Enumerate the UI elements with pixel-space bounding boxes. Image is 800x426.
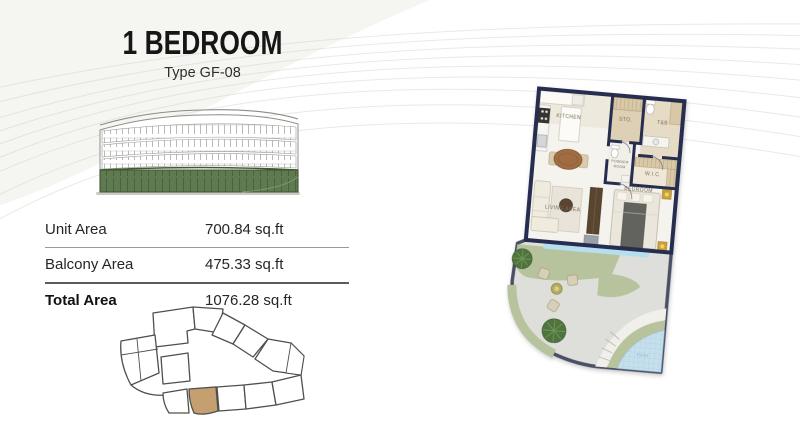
table-row: Unit Area 700.84 sq.ft: [45, 213, 349, 248]
unit-area-value: 700.84 sq.ft: [205, 221, 283, 238]
bed-runner: [621, 202, 647, 248]
building-upper-floors: [100, 115, 298, 170]
balcony-area-value: 475.33 sq.ft: [205, 256, 283, 273]
unit-interior: KITCHEN STO. T&B POWDER ROOM W.I.C. BEDR…: [526, 89, 685, 253]
nightstand-lamp: [662, 190, 672, 200]
terrace: POOL: [503, 239, 671, 372]
stove: [538, 108, 550, 124]
storage-shelf: [614, 97, 643, 111]
building-svg: [92, 97, 308, 203]
storage-label: STO.: [619, 117, 633, 124]
building-ground-floor-highlight: [100, 168, 298, 193]
building-elevation-illustration: [92, 97, 308, 203]
unit-type-label: Type GF-08: [55, 65, 350, 81]
kitchen-island: [559, 107, 582, 143]
site-plan-svg: [93, 299, 313, 421]
floor-plan-svg: POOL: [493, 81, 697, 378]
table-row: Balcony Area 475.33 sq.ft: [45, 248, 349, 284]
page-title: 1 BEDROOM: [85, 24, 321, 62]
wic-label: W.I.C.: [645, 171, 661, 178]
floor-plan: POOL: [493, 81, 697, 378]
toilet-bath-label: T&B: [657, 120, 669, 127]
shower: [669, 102, 682, 125]
site-key-plan: [93, 299, 313, 421]
title-block: 1 BEDROOM Type GF-08: [55, 24, 350, 81]
unit-area-label: Unit Area: [45, 221, 205, 238]
sink: [537, 135, 547, 148]
unit-location-highlight: [189, 387, 218, 414]
balcony-area-label: Balcony Area: [45, 256, 205, 273]
